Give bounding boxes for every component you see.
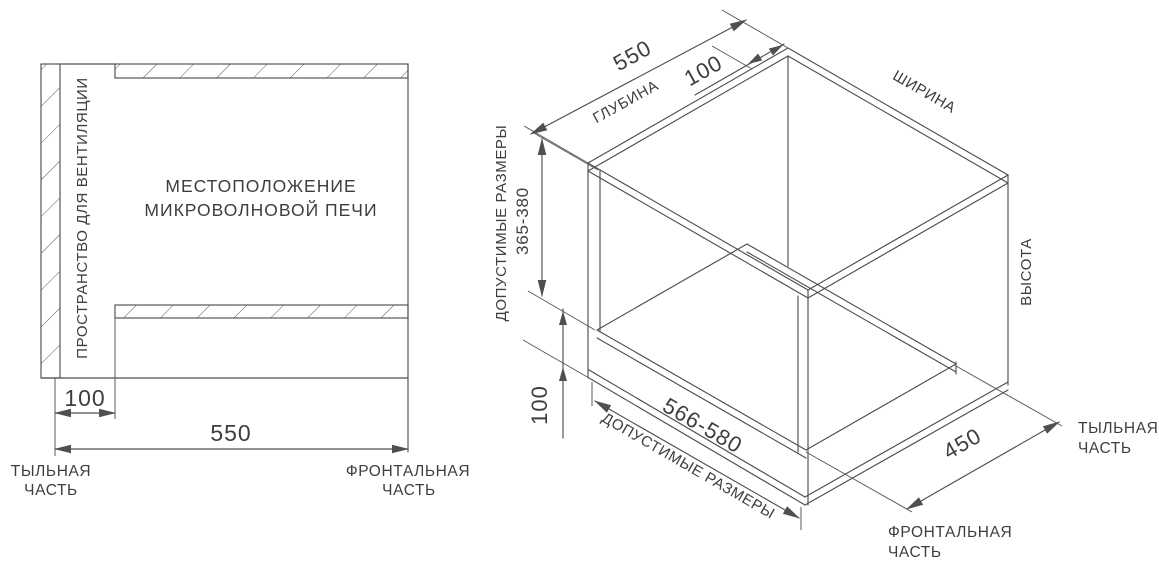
vent-gap-dimension-top: 100: [680, 42, 785, 95]
shelf-depth-dimension: 450: [806, 366, 1062, 512]
width-axis-label: ШИРИНА: [890, 67, 959, 117]
front-part-label-line2: ЧАСТЬ: [382, 482, 436, 499]
iso-front-part-label-line2: ЧАСТЬ: [888, 544, 942, 561]
bottom-gap-dimension: 100: [523, 309, 589, 438]
depth-axis-label: ГЛУБИНА: [590, 77, 662, 127]
rear-part-label-line1: ТЫЛЬНАЯ: [11, 463, 91, 480]
iso-dimension-100-bottom-value: 100: [527, 385, 552, 425]
front-part-label-line1: ФРОНТАЛЬНАЯ: [346, 463, 470, 480]
height-range-value: 365-380: [513, 187, 532, 255]
cabinet-shelf-panel: [115, 305, 408, 318]
iso-dimension-550-value: 550: [609, 35, 656, 76]
height-axis-label: ВЫСОТА: [1018, 238, 1035, 306]
dimension-550-value: 550: [210, 420, 251, 446]
microwave-location-label-line2: МИКРОВОЛНОВОЙ ПЕЧИ: [144, 199, 377, 220]
cabinet-top-panel: [115, 64, 408, 78]
allowed-height-dimension: ДОПУСТИМЫЕ РАЗМЕРЫ 365-380: [493, 125, 598, 330]
depth-dimension: 550 ГЛУБИНА: [524, 10, 788, 163]
shelf-depth-value: 450: [939, 423, 986, 465]
installation-diagram: ПРОСТРАНСТВО ДЛЯ ВЕНТИЛЯЦИИ МЕСТОПОЛОЖЕН…: [0, 0, 1159, 563]
ventilation-space-label: ПРОСТРАНСТВО ДЛЯ ВЕНТИЛЯЦИИ: [74, 77, 91, 359]
iso-dimension-100-top-value: 100: [680, 50, 727, 91]
isometric-figure: 550 ГЛУБИНА 100 ШИРИНА ВЫСОТА ДОПУСТИМЫЕ…: [493, 10, 1158, 561]
dimension-100-value: 100: [64, 385, 105, 411]
iso-rear-part-label-line2: ЧАСТЬ: [1078, 440, 1132, 457]
wall-hatch: [41, 64, 60, 378]
microwave-location-label-line1: МЕСТОПОЛОЖЕНИЕ: [165, 176, 356, 196]
diagram-svg: ПРОСТРАНСТВО ДЛЯ ВЕНТИЛЯЦИИ МЕСТОПОЛОЖЕН…: [0, 0, 1159, 563]
iso-rear-part-label-line1: ТЫЛЬНАЯ: [1078, 420, 1158, 437]
side-view-figure: ПРОСТРАНСТВО ДЛЯ ВЕНТИЛЯЦИИ МЕСТОПОЛОЖЕН…: [11, 64, 470, 499]
allowed-sizes-height-label: ДОПУСТИМЫЕ РАЗМЕРЫ: [493, 125, 510, 322]
allowed-width-dimension: 566-580 ДОПУСТИМЫЕ РАЗМЕРЫ: [592, 382, 801, 530]
rear-part-label-line2: ЧАСТЬ: [24, 482, 78, 499]
iso-front-part-label-line1: ФРОНТАЛЬНАЯ: [888, 524, 1012, 541]
microwave-shelf: [597, 244, 956, 458]
